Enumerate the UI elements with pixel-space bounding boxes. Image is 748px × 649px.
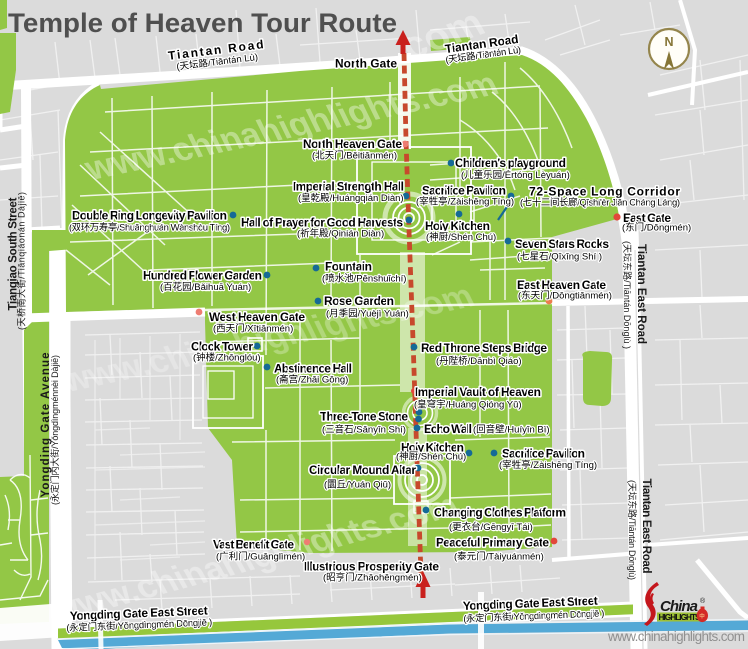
svg-text:(丹陛桥/Dānbì Qiáo): (丹陛桥/Dānbì Qiáo) — [436, 355, 522, 367]
svg-text:Sacrifice Pavilion: Sacrifice Pavilion — [422, 184, 506, 198]
svg-text:Red Throne Steps Bridge: Red Throne Steps Bridge — [421, 341, 547, 355]
svg-text:(斋宫/Zhāi Gōng): (斋宫/Zhāi Gōng) — [276, 374, 348, 386]
svg-text:Children's playground: Children's playground — [455, 156, 566, 170]
svg-text:(昭亨门/Zhāohēngmén): (昭亨门/Zhāohēngmén) — [323, 572, 422, 584]
svg-text:(百花园/Bǎihuā Yuán): (百花园/Bǎihuā Yuán) — [160, 281, 251, 293]
svg-text:(天桥南大街/Tiānqiáonán Dàjiē): (天桥南大街/Tiānqiáonán Dàjiē) — [16, 192, 27, 330]
svg-text:(七十二间长廊/Qīshí'èr Jiān Cháng Lá: (七十二间长廊/Qīshí'èr Jiān Cháng Láng) — [520, 197, 680, 209]
svg-text:®: ® — [700, 597, 706, 605]
svg-text:(东天门/Dōngtiānmén): (东天门/Dōngtiānmén) — [518, 290, 612, 302]
svg-text:Hundred Flower Garden: Hundred Flower Garden — [143, 269, 262, 283]
svg-text:Illustrious Prosperity Gate: Illustrious Prosperity Gate — [304, 560, 439, 574]
svg-text:(广利门/Guānglìmén): (广利门/Guānglìmén) — [216, 551, 305, 563]
svg-text:(泰元门/Tàiyuánmén): (泰元门/Tàiyuánmén) — [454, 551, 544, 563]
svg-text:Vast Benefit Gate: Vast Benefit Gate — [213, 538, 294, 552]
svg-text:Abstinence Hall: Abstinence Hall — [274, 362, 352, 376]
svg-text:Double Ring Longevity Pavilion: Double Ring Longevity Pavilion — [72, 209, 227, 223]
svg-text:(双环万寿亭/Shuānghuán Wànshòu Tíng: (双环万寿亭/Shuānghuán Wànshòu Tíng) — [69, 222, 230, 234]
svg-text:72-Space Long Corridor: 72-Space Long Corridor — [529, 185, 680, 199]
svg-text:Imperial Vault of Heaven: Imperial Vault of Heaven — [415, 385, 541, 399]
svg-text:(宰牲亭/Zàishēng Tíng): (宰牲亭/Zàishēng Tíng) — [416, 196, 514, 208]
svg-text:(三音石/Sānyīn Shí): (三音石/Sānyīn Shí) — [322, 424, 406, 436]
svg-text:Three-Tone Stone: Three-Tone Stone — [320, 410, 408, 424]
svg-text:Temple of Heaven Tour Route: Temple of Heaven Tour Route — [8, 8, 397, 38]
svg-text:Circular Mound Altar: Circular Mound Altar — [309, 463, 416, 477]
svg-text:(钟楼/Zhōnglóu): (钟楼/Zhōnglóu) — [193, 352, 261, 364]
svg-text:(东门/Dōngmén): (东门/Dōngmén) — [622, 222, 691, 234]
svg-text:(皇乾殿/Huángqián Diàn): (皇乾殿/Huángqián Diàn) — [298, 192, 404, 204]
svg-text:Holy Kitchen: Holy Kitchen — [425, 219, 490, 233]
svg-text:(月季园/Yuèjì Yuán): (月季园/Yuèjì Yuán) — [326, 308, 409, 320]
svg-text:(永定门内大街/Yǒngdìngménnèi Dàjiē): (永定门内大街/Yǒngdìngménnèi Dàjiē) — [49, 355, 60, 505]
svg-text:Sacrifice Pavilion: Sacrifice Pavilion — [502, 447, 585, 461]
svg-text:(圜丘/Yuán Qiū): (圜丘/Yuán Qiū) — [324, 480, 391, 491]
svg-text:(喷水池/Pēnshuǐchí): (喷水池/Pēnshuǐchí) — [322, 273, 406, 285]
svg-text:(西天门/Xītiānmén): (西天门/Xītiānmén) — [213, 323, 293, 335]
svg-text:West Heaven Gate: West Heaven Gate — [209, 310, 305, 324]
svg-text:Tiantan East Road: Tiantan East Road — [640, 479, 652, 574]
svg-text:North Gate: North Gate — [335, 57, 397, 71]
svg-text:(北天门/Běitiānmén): (北天门/Běitiānmén) — [312, 150, 397, 162]
svg-text:Echo Wall: Echo Wall — [424, 422, 472, 436]
svg-text:(祈年殿/Qinián Diàn): (祈年殿/Qinián Diàn) — [297, 228, 384, 240]
svg-text:www.chinahighlights.com: www.chinahighlights.com — [607, 629, 745, 644]
svg-text:(神厨/Shén Chú): (神厨/Shén Chú) — [426, 231, 496, 243]
svg-text:Tiantan East Road: Tiantan East Road — [635, 244, 647, 344]
svg-text:Changing Clothes Platform: Changing Clothes Platform — [434, 506, 566, 520]
svg-text:(宰牲亭/Zàishēng Tíng): (宰牲亭/Zàishēng Tíng) — [499, 459, 597, 471]
svg-text:Rose Garden: Rose Garden — [324, 294, 394, 308]
svg-text:(皇穹宇/Huáng Qióng Yǔ): (皇穹宇/Huáng Qióng Yǔ) — [414, 399, 522, 411]
svg-text:Imperial Strength Hall: Imperial Strength Hall — [293, 180, 404, 194]
svg-text:中: 中 — [699, 612, 705, 620]
svg-text:Fountain: Fountain — [325, 260, 372, 274]
svg-text:(儿童乐园/Értóng Lèyuán): (儿童乐园/Értóng Lèyuán) — [461, 169, 570, 181]
svg-text:(七星石/Qīxīng Shí ): (七星石/Qīxīng Shí ) — [517, 252, 602, 263]
svg-text:(神厨/Shén Chú): (神厨/Shén Chú) — [396, 451, 466, 463]
svg-text:Peaceful Primary Gate: Peaceful Primary Gate — [436, 536, 549, 550]
svg-text:(天坛东路/Tiāntán Dōnglù): (天坛东路/Tiāntán Dōnglù) — [627, 480, 638, 580]
svg-text:(回音壁/Huíyīn Bì): (回音壁/Huíyīn Bì) — [473, 424, 550, 436]
svg-text:HIGHLIGHTS: HIGHLIGHTS — [659, 613, 702, 622]
svg-text:(天坛东路/Tiāntán Dōnglù ): (天坛东路/Tiāntán Dōnglù ) — [622, 241, 633, 349]
svg-text:(更衣台/Gēngyī Tái): (更衣台/Gēngyī Tái) — [449, 521, 533, 533]
svg-text:Seven Stars Rocks: Seven Stars Rocks — [515, 237, 609, 251]
svg-text:Hall of Prayer for Good Harves: Hall of Prayer for Good Harvests — [241, 216, 403, 230]
svg-text:North Heaven Gate: North Heaven Gate — [303, 137, 402, 151]
svg-text:N: N — [664, 35, 673, 49]
svg-text:Clock Tower: Clock Tower — [191, 340, 253, 354]
